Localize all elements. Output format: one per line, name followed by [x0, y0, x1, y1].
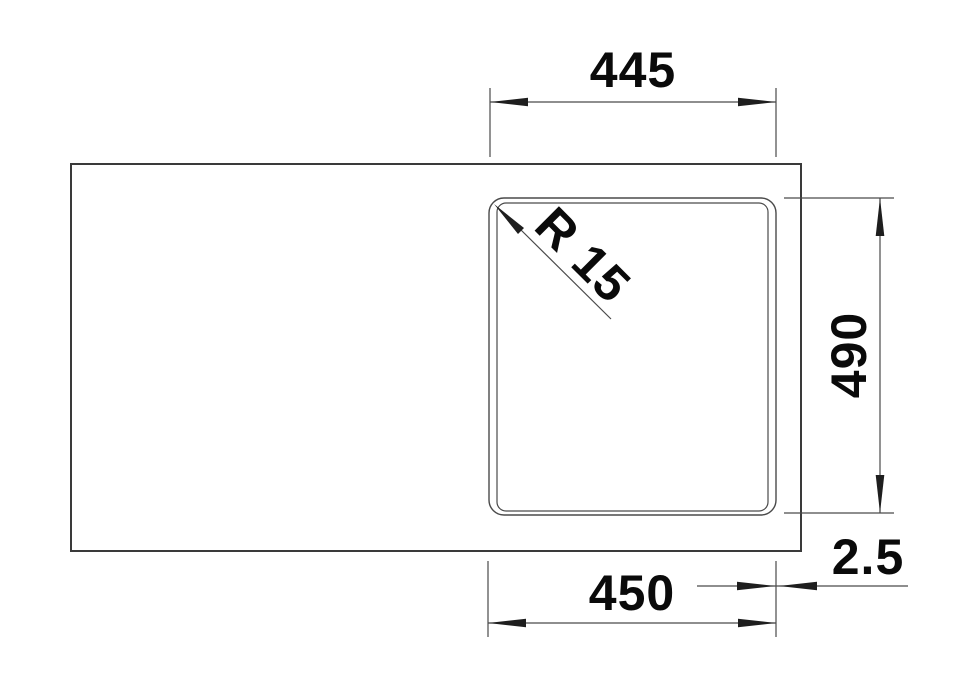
arrowhead-490-top: [876, 198, 885, 236]
arrowhead-2-5-right: [779, 582, 817, 591]
bowl-outer-outline: [489, 198, 776, 515]
arrowhead-r15: [494, 204, 524, 234]
outer-body-outline: [71, 164, 801, 551]
technical-drawing-canvas: 445 490 450 2.5 R 15: [0, 0, 980, 682]
arrowhead-445-right: [738, 98, 776, 107]
dim-label-side-height: 490: [824, 312, 874, 398]
arrowhead-450-right: [738, 619, 776, 628]
dim-label-edge-offset: 2.5: [832, 532, 905, 582]
dim-label-top-width: 445: [590, 45, 676, 95]
arrowhead-2-5-left: [737, 582, 775, 591]
dim-label-bottom-width: 450: [589, 568, 675, 618]
arrowhead-445-left: [490, 98, 528, 107]
arrowhead-490-bottom: [876, 475, 885, 513]
arrowhead-450-left: [488, 619, 526, 628]
